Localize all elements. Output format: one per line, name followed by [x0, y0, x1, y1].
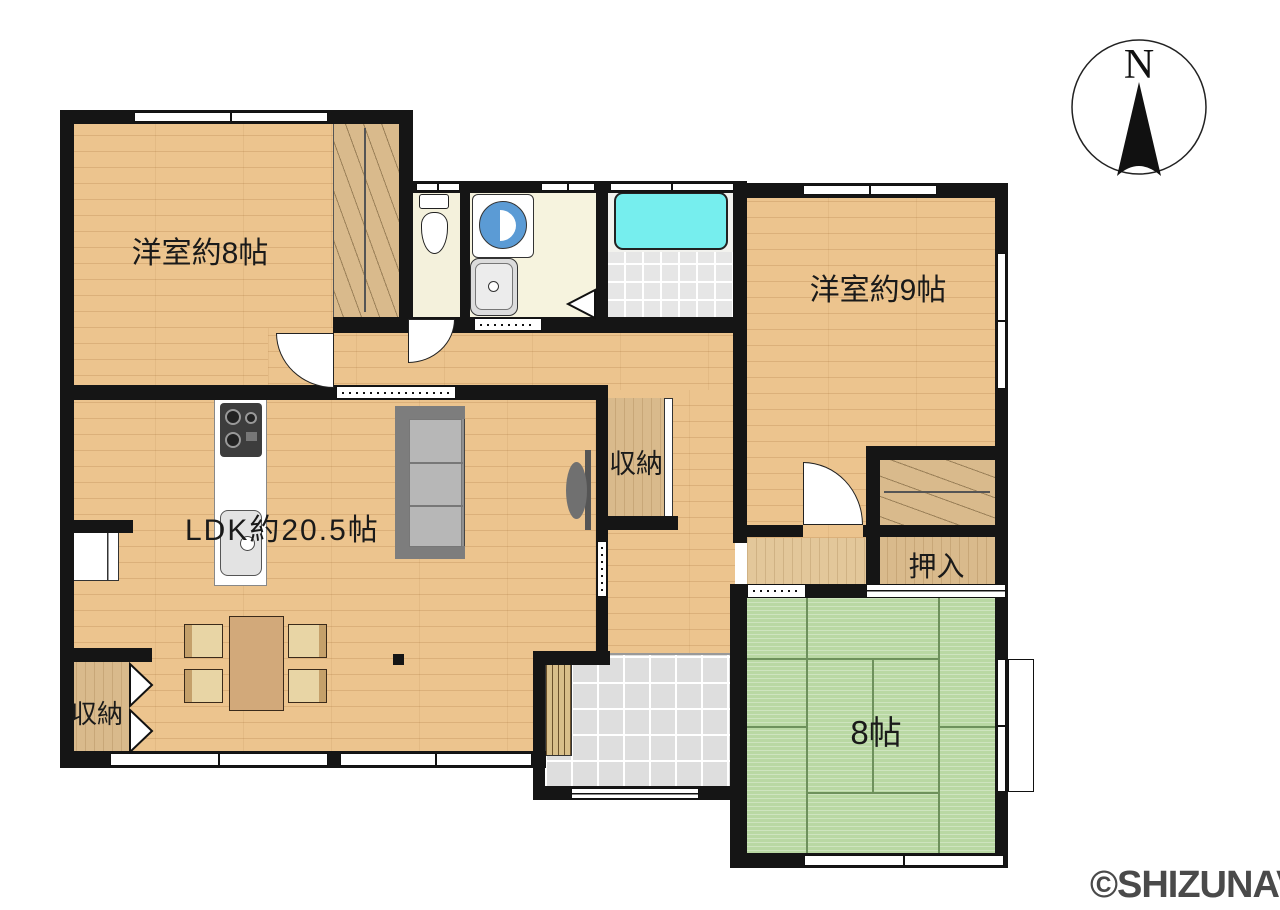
room-west8-label: 洋室約8帖 [100, 228, 300, 272]
wall [733, 181, 747, 543]
closet-west9-pipe [884, 491, 990, 493]
toilet-tank-icon [419, 194, 449, 209]
dining-chair [288, 669, 327, 703]
washbasin-drain-icon [488, 281, 499, 292]
pillar [393, 654, 404, 665]
tatami-line [806, 792, 940, 794]
bay-window [1008, 659, 1034, 792]
tatami-line [747, 658, 940, 660]
sofa-armrest [395, 406, 465, 419]
floor-plan-page: { "labels": { "room_west_8": "洋室約8帖", "r… [0, 0, 1280, 910]
folding-door-icon [128, 662, 155, 708]
window [803, 185, 937, 195]
tv-icon [566, 462, 587, 519]
watermark: ©SHIZUNAVI [1090, 864, 1280, 907]
wall [60, 110, 74, 768]
window [804, 855, 1004, 866]
compass: N [1068, 36, 1210, 178]
closet-west8-pipe [364, 128, 366, 312]
oshiire-doors [866, 584, 1006, 598]
wall [460, 186, 470, 319]
window [134, 112, 328, 122]
window [997, 253, 1006, 389]
tatami-label: 8帖 [747, 706, 1005, 754]
closet-west9 [878, 459, 995, 527]
closet-west8 [333, 122, 400, 319]
wall [596, 516, 678, 530]
stove-knob-icon [246, 432, 257, 441]
dining-table [229, 616, 284, 711]
shoe-cabinet-icon [545, 660, 572, 756]
wall [60, 520, 133, 533]
wall [866, 446, 1008, 460]
storage-mid-label: 収納 [603, 442, 669, 481]
window [610, 183, 734, 191]
wall [60, 385, 608, 400]
sofa-armrest [395, 546, 465, 559]
entrance-tile [545, 655, 735, 788]
sliding-door [336, 386, 456, 399]
ldk-label: LDK約20.5帖 [185, 505, 380, 549]
wall [806, 584, 868, 598]
dining-chair [184, 669, 223, 703]
entrance-step-line [608, 653, 735, 655]
window [416, 183, 460, 191]
wall [747, 525, 803, 537]
stove-burner-icon [245, 412, 257, 424]
refrigerator-icon [70, 531, 119, 581]
bathtub-icon [614, 192, 728, 250]
folding-door-icon [564, 288, 598, 320]
sliding-door [474, 318, 542, 331]
wall [533, 651, 545, 800]
room-west9-label: 洋室約9帖 [778, 265, 978, 309]
entrance-door [571, 788, 699, 799]
wall [399, 110, 413, 333]
window [110, 753, 328, 766]
wall [863, 525, 1008, 537]
compass-north-label: N [1124, 42, 1154, 88]
stove-burner-icon [225, 409, 241, 425]
sofa-back [395, 406, 409, 559]
window [340, 753, 532, 766]
storage-entry-label: 収納 [63, 694, 131, 731]
sliding-door [597, 541, 607, 597]
sofa-cushion-line [410, 462, 463, 464]
dining-chair [288, 624, 327, 658]
wall [730, 584, 747, 868]
sliding-door [747, 584, 806, 598]
stove-burner-icon [225, 432, 241, 448]
dining-chair [184, 624, 223, 658]
window [541, 183, 595, 191]
wall [60, 648, 152, 662]
sofa-cushion-line [410, 505, 463, 507]
hall-strip-floor [747, 530, 875, 588]
sofa-cushions [409, 419, 462, 547]
bathroom-tile [606, 252, 735, 319]
folding-door-icon [128, 708, 155, 754]
oshiire-label: 押入 [878, 545, 995, 585]
